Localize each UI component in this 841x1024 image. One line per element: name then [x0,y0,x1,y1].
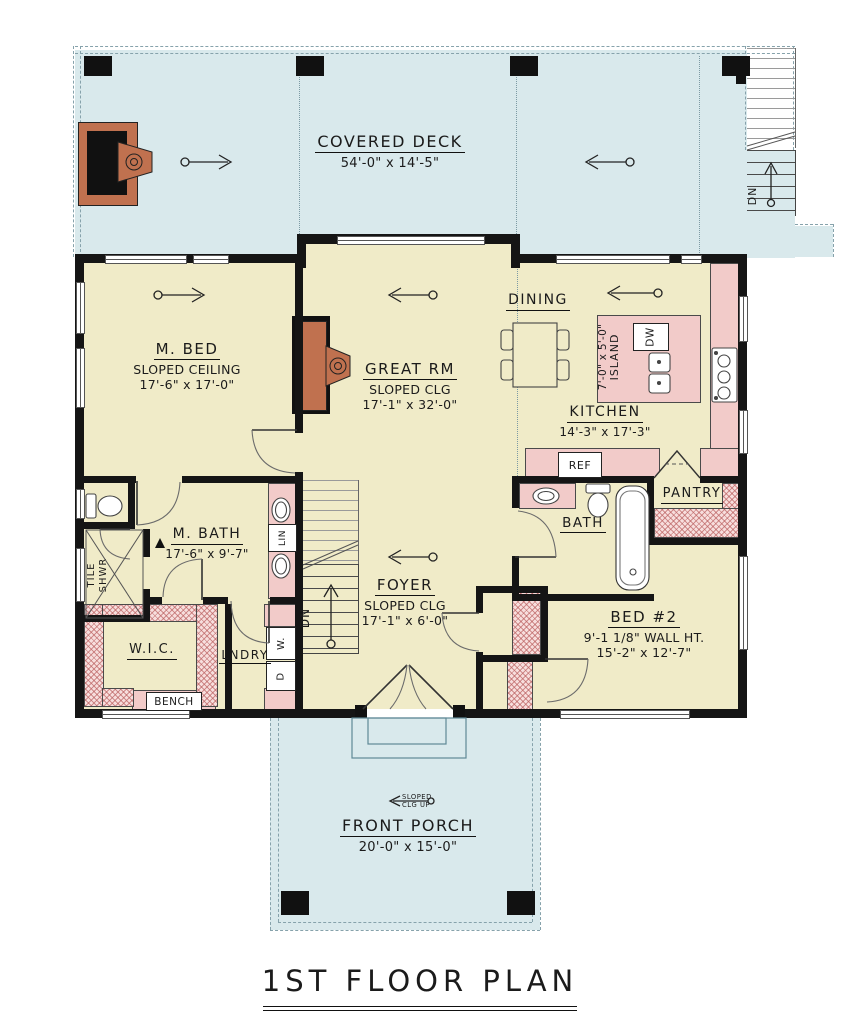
room-name: BED #2 [608,608,679,628]
lndry-label: LNDRY [216,648,274,664]
window [681,255,702,264]
wic-label: W.I.C. [112,642,192,660]
wall [84,522,135,529]
wall [150,597,162,604]
island-name: ISLAND [609,317,622,397]
porch-edge [278,718,279,922]
room-sub: SLOPED CEILING [107,362,267,377]
deck-post [510,56,538,76]
wall [84,476,136,483]
washer-label: W. [275,637,286,650]
bed2-label: BED #2 9'-1 1/8" WALL HT. 15'-2" x 12'-7… [564,608,724,660]
window [556,255,670,264]
porch-post [507,891,535,915]
tile-line: TILE [86,545,98,605]
wall [512,594,654,601]
deck-break-line [699,56,700,253]
slope-line2: CLG UP [402,801,448,809]
wall [84,615,150,622]
room-name: PANTRY [661,486,724,504]
porch-post [281,891,309,915]
wall [541,586,548,662]
entry-jamb [355,705,367,718]
pantry-shelf [654,508,744,538]
slope-line1: SLOPED [402,793,448,801]
bath-label: BATH [548,515,618,533]
refrigerator: REF [558,452,602,478]
wall [476,652,483,718]
porch-edge [278,922,532,923]
dw-label: DW [645,327,657,346]
wall [512,483,519,508]
room-dims: 17'-1" x 32'-0" [330,397,490,412]
wall [128,483,135,527]
floor-plan-sheet: REF DW LIN W. D BENCH COVERED DECK 54'-0… [0,0,841,1024]
slope-note: SLOPED CLG UP [402,793,448,809]
bed2-closet-shelf [507,661,533,711]
room-name: FOYER [375,576,435,596]
window [105,255,187,264]
dryer: D [266,661,296,691]
wall [203,597,228,604]
window [76,348,85,408]
interior-stairs-upper [303,480,359,564]
ext-stairs-upper [747,48,796,148]
deck-break-line [516,56,517,234]
window [739,410,748,454]
window [560,710,690,719]
window [193,255,229,264]
room-dims: 17'-6" x 17'-0" [107,377,267,392]
deck-edge-line [75,53,795,54]
window [337,236,485,245]
wall [295,472,303,718]
porch-edge [540,718,541,930]
porch-edge [270,718,271,930]
title-underline [263,1006,577,1011]
laundry-counter-top [264,604,297,627]
window [76,548,85,602]
great-rm-label: GREAT RM SLOPED CLG 17'-1" x 32'-0" [330,360,490,412]
room-name: COVERED DECK [315,132,464,153]
wall [700,476,747,483]
window [739,556,748,650]
stairs-bottom-line [303,653,358,654]
ext-dn-label: DN [741,185,777,207]
room-name: M. BED [154,340,221,360]
room-name: W.I.C. [127,642,177,660]
foyer-label: FOYER SLOPED CLG 17'-1" x 6'-0" [330,576,480,628]
room-name: FRONT PORCH [340,816,476,837]
deck-edge-line [73,46,74,257]
dining-label: DINING [495,292,581,311]
bench: BENCH [146,692,202,711]
pantry-label: PANTRY [652,486,732,504]
room-dims: 14'-3" x 17'-3" [545,425,665,439]
landing-edge [833,224,834,257]
window [76,489,85,519]
room-name: LNDRY [219,648,270,664]
front-porch-label: FRONT PORCH 20'-0" x 15'-0" [328,816,488,856]
sheet-title: 1ST FLOOR PLAN [230,964,610,999]
room-dims: 54'-0" x 14'-5" [290,156,490,172]
deck-post [84,56,112,76]
dryer-label: D [275,672,286,680]
room-name: M. BATH [171,526,244,545]
bench-label: BENCH [154,696,193,708]
wall [182,476,295,483]
room-dims: 17'-6" x 9'-7" [137,547,277,561]
sheet-title-text: 1ST FLOOR PLAN [262,964,578,998]
wic-shelf-bottom [102,688,134,707]
room-dims: 17'-1" x 6'-0" [330,613,480,628]
room-sub: SLOPED CLG [330,598,480,613]
dishwasher: DW [633,323,669,351]
room-name: DINING [506,292,570,311]
window [76,282,85,334]
wall [647,538,747,545]
deck-fireplace-box [87,131,127,195]
ref-label: REF [569,459,591,472]
deck-edge-line [75,46,795,47]
ext-stair-post [736,64,746,84]
room-name: BATH [560,515,606,533]
island-label: 7'-0" x 5'-0" ISLAND [597,317,637,397]
window [739,296,748,342]
room-sub: SLOPED CLG [330,382,490,397]
m-bath-label: M. BATH 17'-6" x 9'-7" [137,526,277,561]
m-bed-label: M. BED SLOPED CEILING 17'-6" x 17'-0" [107,340,267,392]
wall [476,655,548,662]
room-name: KITCHEN [567,404,642,423]
lin-label: LIN [278,530,288,546]
shwr-line: SHWR [98,545,110,605]
room-dims: 15'-2" x 12'-7" [564,645,724,660]
stairs-dn-label: DN [294,604,334,632]
porch-edge [270,930,540,931]
room-name: GREAT RM [363,360,457,380]
dn-text: DN [298,608,312,628]
window [102,710,190,719]
tile-shwr-label: TILE SHWR [86,545,130,605]
dn-text: DN [746,187,759,206]
kitchen-label: KITCHEN 14'-3" x 17'-3" [545,404,665,439]
wall [270,597,295,604]
kitchen-counter-right [710,263,740,478]
ext-stair-landing [795,226,833,257]
foyer-closet-shelf [512,592,541,655]
laundry-counter-bottom [264,688,297,711]
wall [295,263,303,433]
landing-edge [795,224,833,225]
covered-deck-label: COVERED DECK 54'-0" x 14'-5" [290,132,490,172]
entry-jamb [453,705,465,718]
bath-vanity [519,483,576,509]
room-dims: 20'-0" x 15'-0" [328,840,488,856]
room-sub: 9'-1 1/8" WALL HT. [564,630,724,645]
deck-post [296,56,324,76]
wall [476,586,548,593]
counter-by-pantry [700,448,740,478]
entry-opening [357,709,461,718]
